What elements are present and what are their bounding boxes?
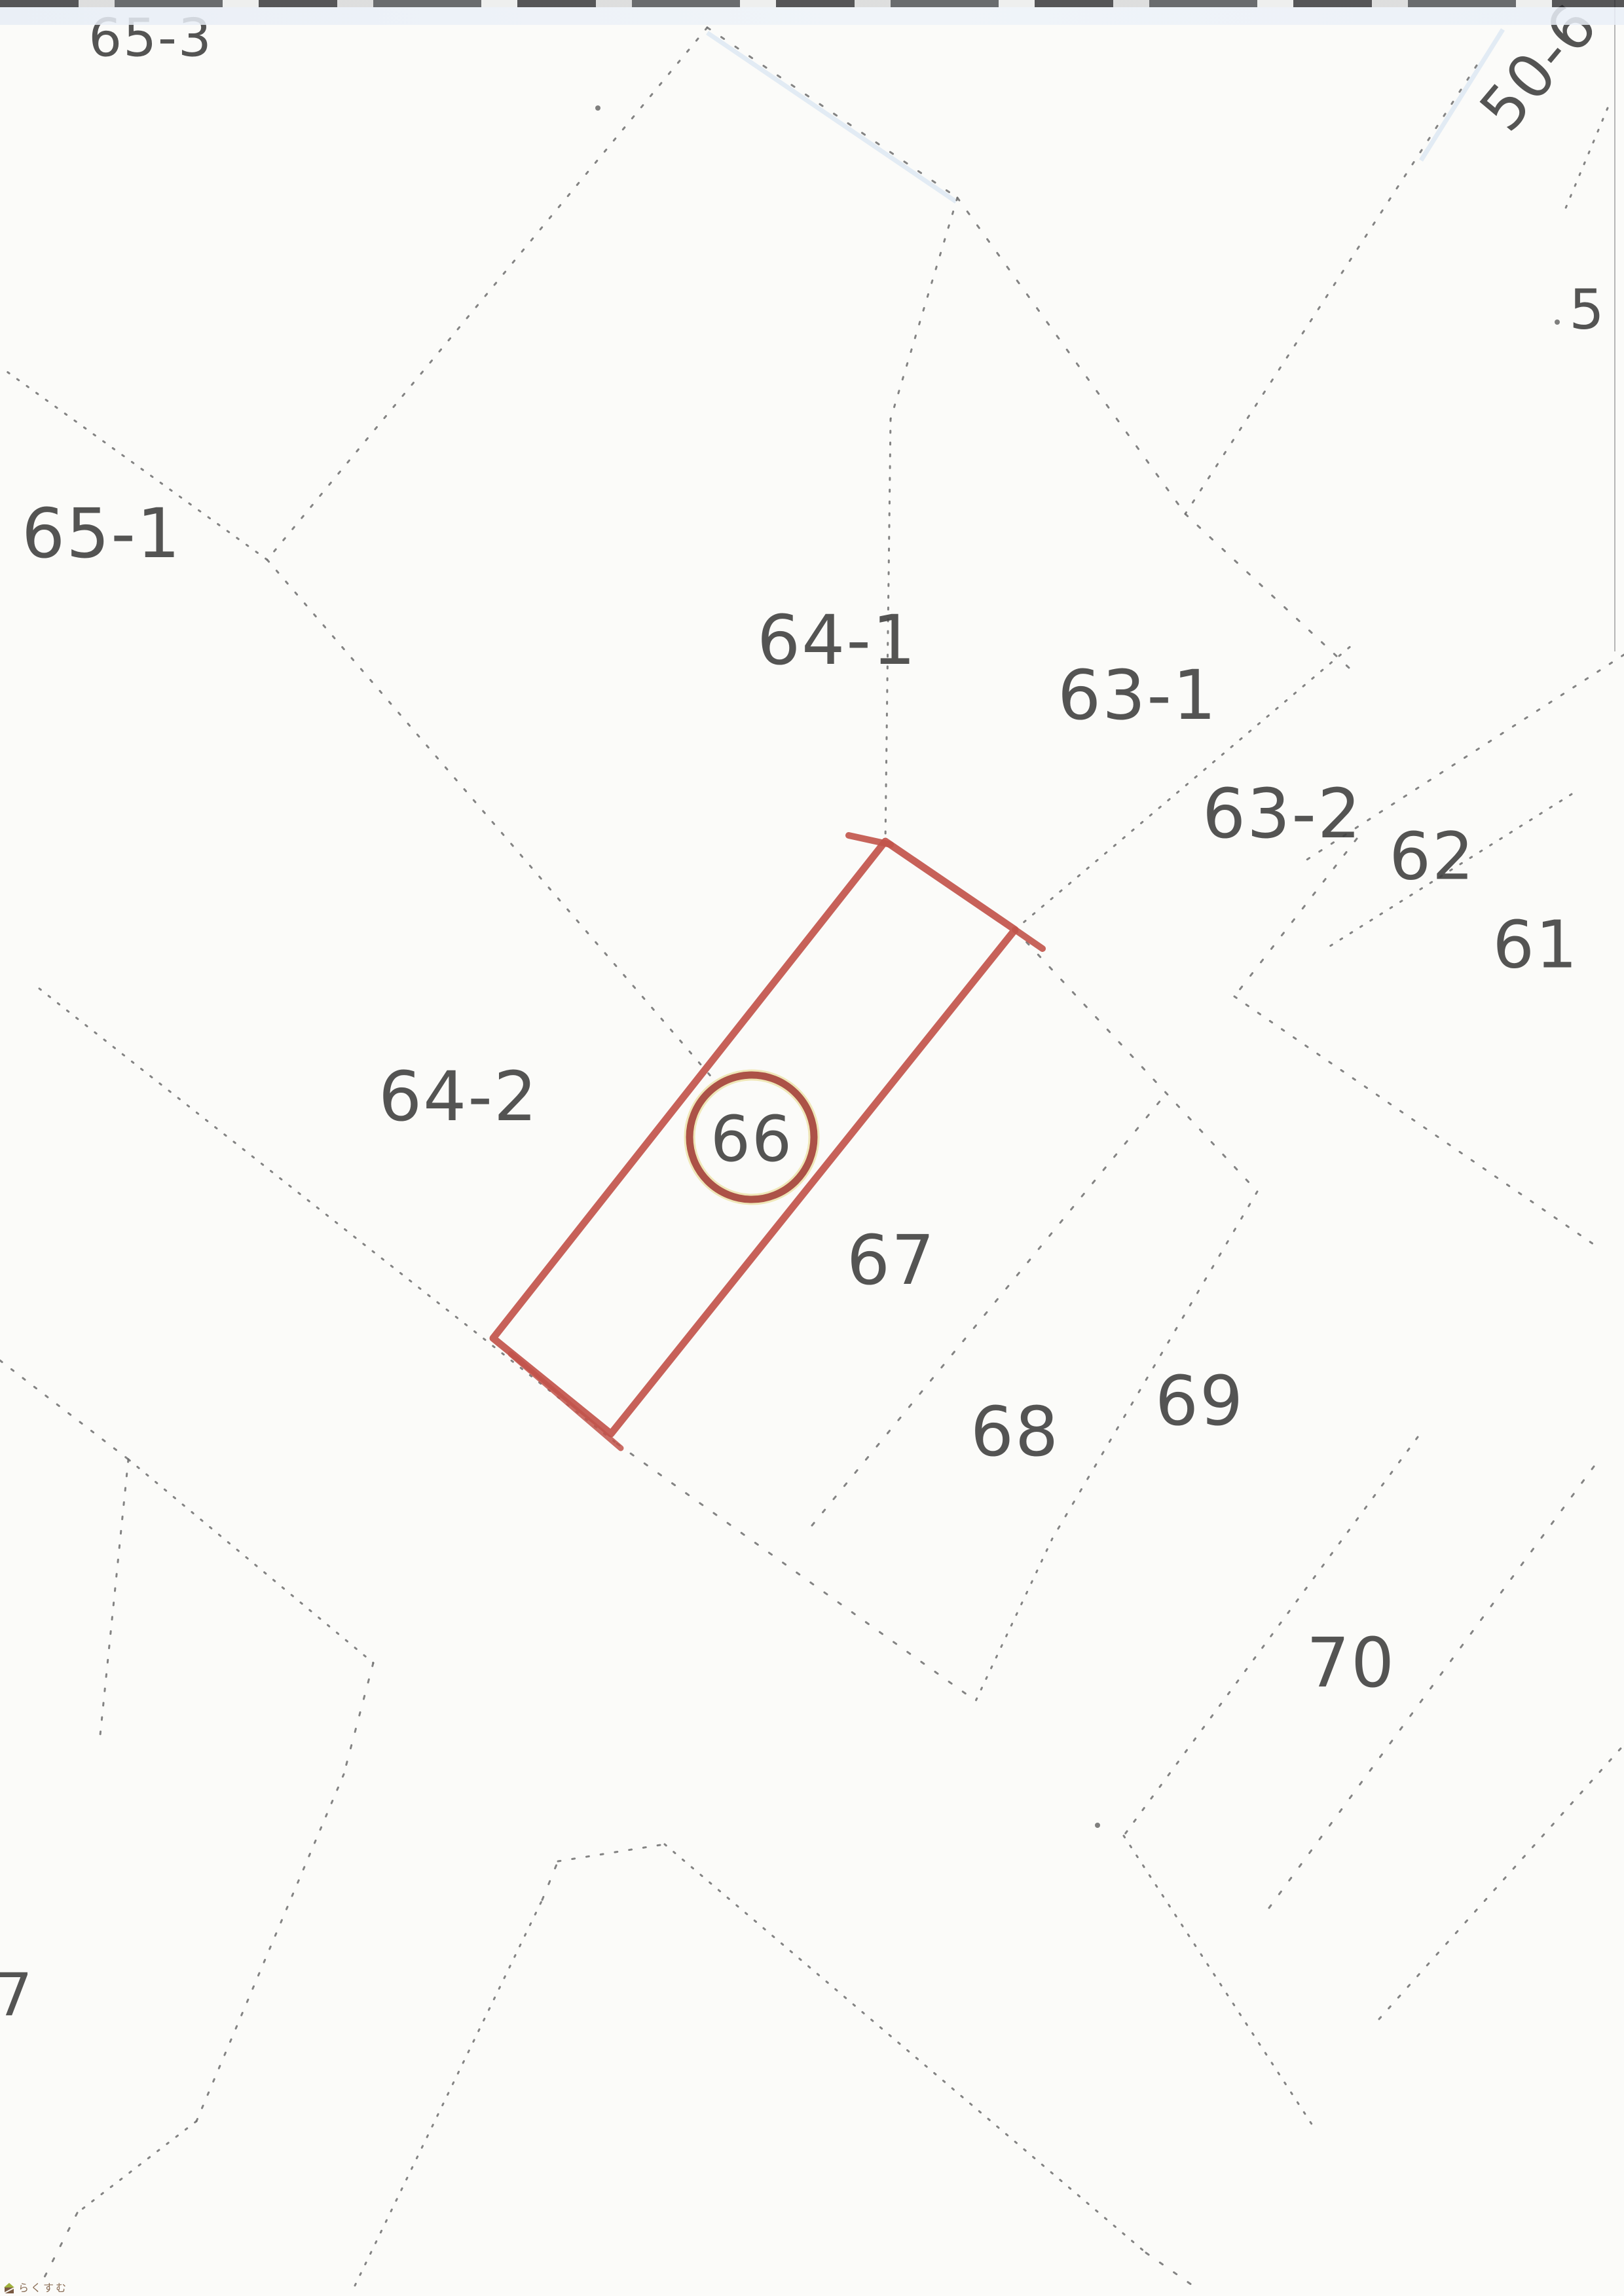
scan-speck	[1555, 319, 1560, 325]
house-icon	[4, 2283, 14, 2293]
parcel-boundary-line	[957, 198, 1185, 514]
parcel-label-7-partial: 7	[0, 1961, 34, 2030]
parcel-label-70: 70	[1306, 1623, 1395, 1703]
parcel-boundary-line	[128, 1459, 373, 1663]
parcel-boundary-line	[1234, 996, 1598, 1247]
parcel-boundary-line	[1185, 65, 1477, 514]
parcel-boundary-line	[542, 1861, 558, 1900]
scan-speck	[595, 105, 600, 111]
scan-fringe-line	[707, 33, 956, 202]
parcel-boundary-line	[891, 198, 957, 419]
parcel-boundary-line	[707, 27, 957, 198]
parcel-label-64-2: 64-2	[378, 1057, 538, 1137]
scan-edge-band	[0, 0, 1624, 7]
parcel-boundary-line	[1379, 1745, 1624, 2019]
parcel-label-68: 68	[970, 1392, 1060, 1472]
parcel-boundary-line	[267, 560, 717, 1084]
parcel-boundary-line	[0, 1360, 128, 1459]
parcel-boundary-line	[1124, 1836, 1316, 2131]
parcel-label-66: 66	[710, 1102, 793, 1176]
house-body-icon	[5, 2287, 14, 2293]
parcel-label-5-partial: 5	[1569, 278, 1605, 342]
parcel-boundary-line	[617, 1444, 976, 1701]
parcel-boundary-line	[665, 1844, 1146, 2253]
parcel-label-65-1: 65-1	[22, 494, 181, 574]
parcel-boundary-line	[1015, 930, 1257, 1192]
parcel-boundary-line	[1565, 108, 1608, 210]
parcel-boundary-line	[45, 2213, 77, 2277]
parcel-boundary-line	[1146, 2253, 1198, 2289]
parcel-boundary-line	[100, 1459, 128, 1741]
parcel-boundary-line	[1185, 514, 1349, 668]
parcel-boundary-line	[267, 27, 707, 560]
logo-text: らくすむ	[18, 2281, 68, 2295]
highlight-double-stroke	[511, 1354, 621, 1448]
cadastral-map-page: 65-350-6565-164-163-163-2626164-26667686…	[0, 0, 1624, 2296]
parcel-label-62: 62	[1389, 818, 1475, 895]
parcel-label-61: 61	[1492, 907, 1578, 983]
scan-speck	[1095, 1823, 1100, 1828]
parcel-boundary-line	[558, 1844, 665, 1861]
highlight-corner-tick	[849, 835, 891, 845]
parcel-boundary-line	[976, 1539, 1052, 1701]
highlight-corner-tick	[1015, 930, 1043, 949]
cadastral-map: 65-350-6565-164-163-163-2626164-26667686…	[0, 0, 1624, 2296]
parcel-boundary-line	[196, 1774, 344, 2121]
scan-tint-band	[0, 7, 1624, 25]
parcel-boundary-line	[1234, 839, 1357, 996]
parcel-label-64-1: 64-1	[757, 600, 917, 680]
parcel-boundary-line	[77, 2121, 196, 2213]
parcel-label-63-1: 63-1	[1058, 655, 1217, 735]
rakusumu-logo: らくすむ	[4, 2281, 68, 2295]
house-roof-icon	[4, 2283, 14, 2287]
parcel-label-67: 67	[847, 1220, 936, 1300]
parcel-boundary-line	[344, 1663, 373, 1774]
parcel-label-63-2: 63-2	[1202, 774, 1362, 854]
parcel-label-69: 69	[1155, 1361, 1244, 1441]
parcel-boundary-line	[355, 1900, 542, 2286]
